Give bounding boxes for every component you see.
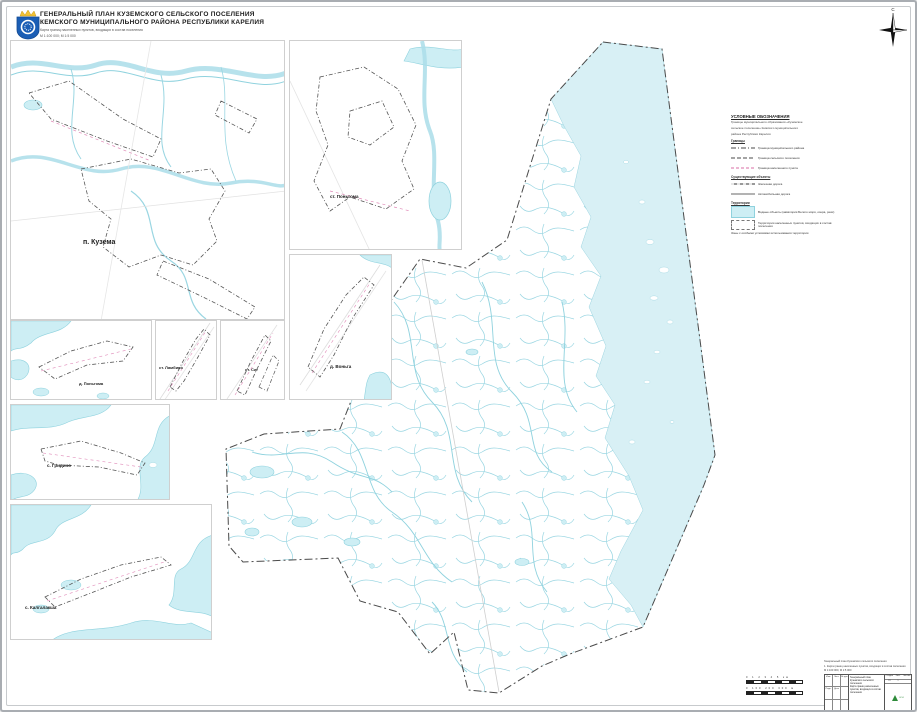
legend-section-territories: Территории: [731, 201, 845, 205]
legend-title: УСЛОВНЫЕ ОБОЗНАЧЕНИЯ: [731, 114, 845, 119]
stamp-revision-grid: Изм. Лист № док. Подп. Дата: [825, 675, 849, 711]
stamp-table: Изм. Лист № док. Подп. Дата Генеральный …: [824, 674, 912, 712]
coat-of-arms-icon: [15, 10, 41, 40]
inset-label-gridino: с. Гридино: [47, 463, 71, 468]
legend-item-railway: Железная дорога: [731, 180, 845, 188]
legend-section-borders: Границы: [731, 139, 845, 143]
legend-item-district-border: Граница муниципального района: [731, 144, 845, 152]
scalebar2-ticks: 0 100 200 300 м: [746, 687, 806, 690]
legend-item-np-border: Граница населенного пункта: [731, 164, 845, 172]
header: ГЕНЕРАЛЬНЫЙ ПЛАН КУЗЕМСКОГО СЕЛЬСКОГО ПО…: [40, 11, 264, 38]
inset-label-lambino: ст. Ламбино: [159, 365, 183, 370]
page-title-line2: КЕМСКОГО МУНИЦИПАЛЬНОГО РАЙОНА РЕСПУБЛИК…: [40, 19, 264, 27]
stamp-doc-title: Генеральный план Куземского сельского по…: [849, 675, 885, 711]
inset-label-kalgalaksha: с. Калгалакша: [25, 605, 56, 610]
north-arrow: С: [874, 7, 912, 49]
legend-item-np-territory: Территории населенных пунктов, входящих …: [731, 220, 845, 230]
legend-item-settlement-border: Граница сельского поселения: [731, 154, 845, 162]
inset-lambino: ст. Ламбино: [155, 320, 217, 400]
inset-label-vonga: д. Воньга: [330, 364, 351, 369]
np-territory-swatch-icon: [731, 220, 755, 230]
legend-item-zones: Зоны с особыми условиями использования т…: [731, 232, 845, 236]
stamp-note-1: Генеральный план Куземского сельского по…: [824, 660, 914, 663]
inset-kuzema: п. Кузема: [10, 40, 285, 320]
legend: УСЛОВНЫЕ ОБОЗНАЧЕНИЯ Границы муниципальн…: [731, 114, 845, 238]
inset-vonga: д. Воньга: [289, 254, 392, 400]
scale-bars: 0 1 2 3 4 5 км 0 100 200 300 м: [746, 676, 806, 698]
scalebar1: [746, 680, 803, 684]
inset-sig: ст. Сиг: [220, 320, 285, 400]
stamp-stage-grid: Стадия Лист Листов ГП 1 ООО: [885, 675, 911, 711]
pink-dashed-line-icon: [731, 164, 755, 172]
water-swatch-icon: [731, 206, 755, 218]
tree-icon: [892, 695, 898, 701]
compass-star-icon: [875, 12, 911, 48]
inset-st-pongoma: ст. Поньгома: [289, 40, 462, 250]
org-logo: ООО: [885, 684, 911, 711]
inset-label-sig: ст. Сиг: [245, 367, 258, 372]
page-title-line1: ГЕНЕРАЛЬНЫЙ ПЛАН КУЗЕМСКОГО СЕЛЬСКОГО ПО…: [40, 11, 264, 19]
title-block: Генеральный план Куземского сельского по…: [824, 660, 914, 712]
railway-line-icon: [731, 180, 755, 188]
inset-label-d-pongoma: д. Поньгома: [79, 381, 103, 386]
dashed-line-icon: [731, 154, 755, 162]
inset-d-pongoma: д. Поньгома: [10, 320, 152, 400]
map-sheet: ГЕНЕРАЛЬНЫЙ ПЛАН КУЗЕМСКОГО СЕЛЬСКОГО ПО…: [0, 0, 917, 712]
legend-intro-1: Границы муниципального образования «Кузе…: [731, 121, 845, 125]
legend-section-objects: Существующие объекты: [731, 175, 845, 179]
inset-label-kuzema: п. Кузема: [83, 239, 115, 246]
page-subtitle-line2: М 1:100 000; М 1:5 000: [40, 34, 264, 39]
legend-intro-2: сельское поселение» Кемского муниципальн…: [731, 127, 845, 131]
legend-item-water: Водные объекты (акватория Белого моря, о…: [731, 206, 845, 218]
dash-dot-line-icon: [731, 144, 755, 152]
scalebar1-ticks: 0 1 2 3 4 5 км: [746, 676, 806, 679]
legend-item-road: Автомобильная дорога: [731, 190, 845, 198]
stamp-note-3: М 1:100 000, М 1:5 000: [824, 669, 914, 672]
stamp-note-2: 1. Карта границ населенных пунктов, вход…: [824, 665, 914, 668]
inset-label-st-pongoma: ст. Поньгома: [330, 194, 359, 199]
inset-gridino: с. Гридино: [10, 404, 170, 500]
scalebar2: [746, 691, 803, 695]
page-subtitle-line1: Карта границ населенных пунктов, входящи…: [40, 28, 264, 33]
road-line-icon: [731, 190, 755, 198]
inset-kalgalaksha: с. Калгалакша: [10, 504, 212, 640]
legend-intro-3: района Республики Карелия: [731, 133, 845, 137]
